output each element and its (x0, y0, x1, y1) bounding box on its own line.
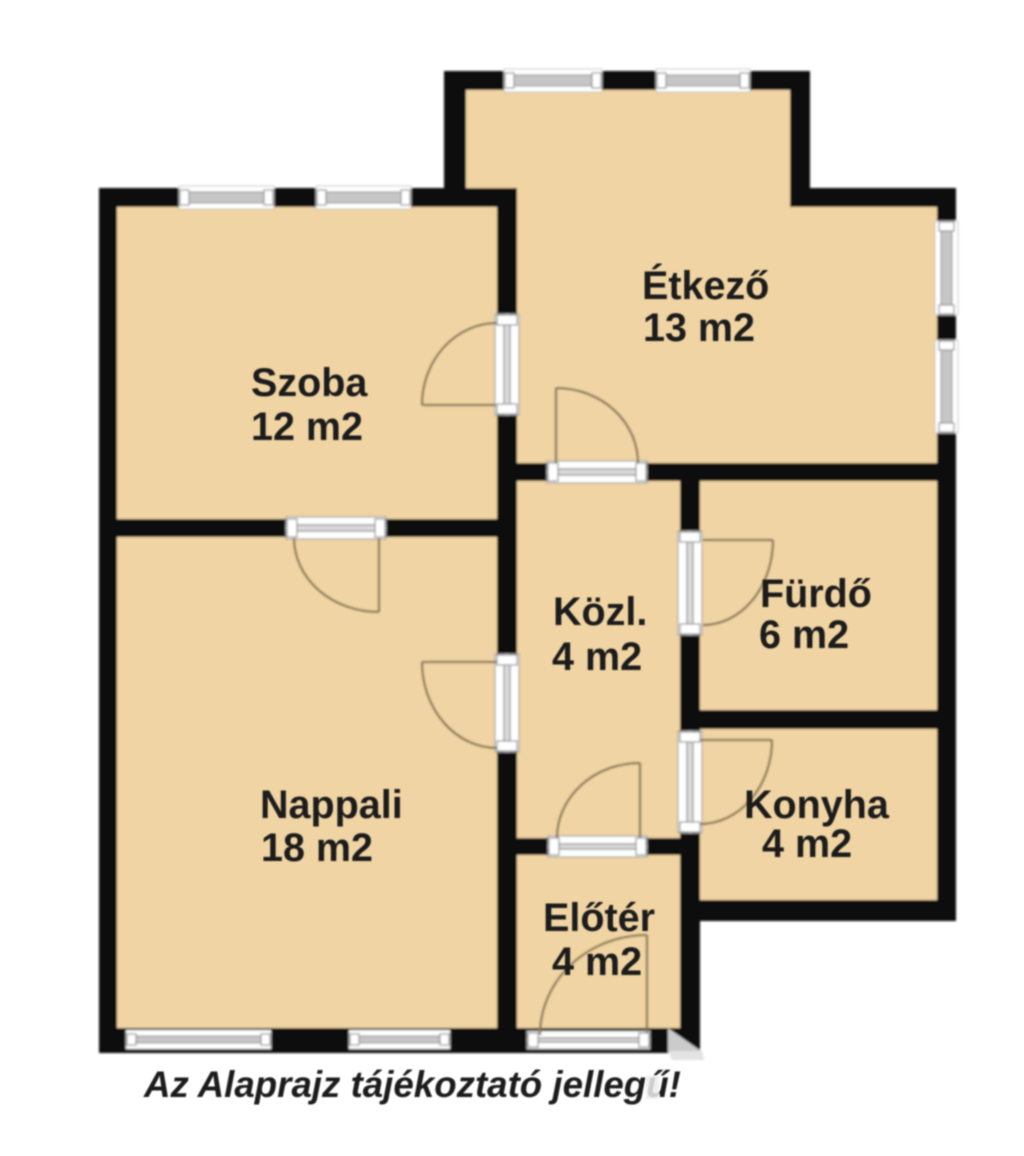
svg-text:Közl.: Közl. (553, 590, 647, 634)
svg-text:4 m2: 4 m2 (762, 822, 852, 866)
svg-text:Előtér: Előtér (543, 896, 655, 940)
svg-text:Konyha: Konyha (744, 783, 890, 827)
svg-text:Étkező: Étkező (642, 264, 769, 308)
svg-text:12 m2: 12 m2 (251, 405, 363, 449)
svg-text:6 m2: 6 m2 (759, 613, 849, 657)
svg-text:Nappali: Nappali (260, 783, 403, 827)
svg-text:Az Alaprajz tájékoztató jelleg: Az Alaprajz tájékoztató jellegű! (143, 1064, 681, 1105)
svg-text:13 m2: 13 m2 (643, 306, 755, 350)
svg-text:18 m2: 18 m2 (261, 826, 373, 870)
svg-text:Fürdő: Fürdő (760, 572, 872, 616)
svg-text:Szoba: Szoba (251, 361, 368, 405)
svg-text:4 m2: 4 m2 (552, 635, 642, 679)
svg-text:4 m2: 4 m2 (552, 940, 642, 984)
